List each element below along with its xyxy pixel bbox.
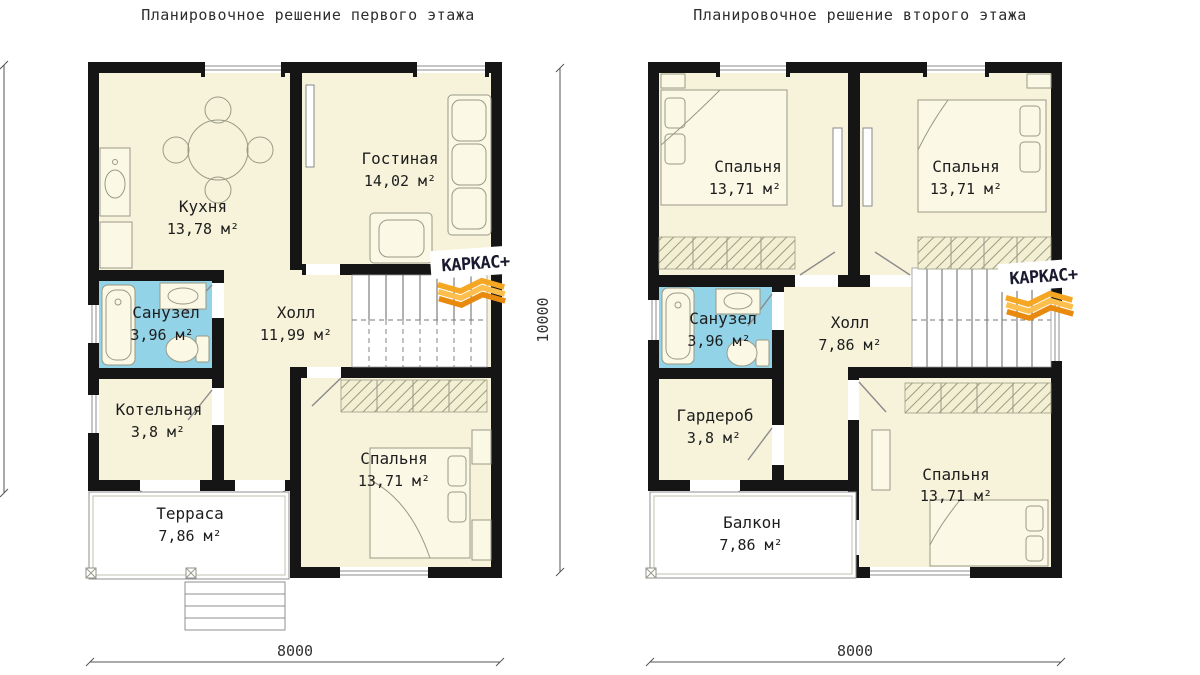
- floor-plans-canvas: Кухня 13,78 м² Гостиная 14,02 м² Санузел…: [0, 0, 1200, 675]
- room-area: 3,8 м²: [131, 423, 185, 441]
- balcony: [646, 492, 856, 578]
- bathtub-icon: [102, 285, 135, 365]
- room-name: Спальня: [922, 465, 989, 484]
- second-floor-plan: Спальня 13,71 м² Спальня 13,71 м² Санузе…: [646, 62, 1062, 578]
- window-bedroom: [340, 567, 428, 578]
- room-area: 3,8 м²: [687, 429, 741, 447]
- balcony-post: [646, 568, 656, 578]
- room-name: Терраса: [156, 504, 223, 523]
- window-bathroom: [88, 305, 99, 343]
- kitchen-counter-icon: [100, 148, 132, 268]
- sofa-icon: [448, 95, 491, 235]
- dimension-label: 8000: [837, 642, 873, 660]
- floor-plan-sheet: Планировочное решение первого этажа План…: [0, 0, 1200, 675]
- door-leaf-panel: [833, 128, 842, 206]
- dimension-width-second-floor: 8000: [646, 642, 1065, 666]
- room-name: Санузел: [689, 309, 756, 328]
- room-name: Балкон: [723, 513, 781, 532]
- dimension-depth-left-clipped: 10000: [0, 61, 8, 497]
- wardrobe: [341, 380, 487, 412]
- room-area: 13,71 м²: [709, 180, 781, 198]
- window-boiler: [88, 395, 99, 433]
- room-name: Холл: [831, 313, 870, 332]
- room-area: 3,96 м²: [687, 332, 750, 350]
- dimension-depth-middle: 10000: [534, 64, 564, 576]
- karkas-logo-second: КАРКАС+: [998, 258, 1092, 320]
- room-area: 13,71 м²: [930, 180, 1002, 198]
- room-name: Спальня: [714, 157, 781, 176]
- room-area: 13,71 м²: [920, 487, 992, 505]
- dimension-width-first-floor: 8000: [86, 642, 504, 666]
- room-area: 7,86 м²: [158, 527, 221, 545]
- room-area: 13,78 м²: [167, 220, 239, 238]
- room-name: Кухня: [179, 197, 227, 216]
- dimension-label: 10000: [534, 297, 552, 342]
- room-name: Котельная: [116, 400, 203, 419]
- room-name: Холл: [277, 303, 316, 322]
- room-area: 7,86 м²: [719, 536, 782, 554]
- room-name: Санузел: [132, 303, 199, 322]
- room-area: 14,02 м²: [364, 172, 436, 190]
- room-area: 3,96 м²: [130, 326, 193, 344]
- terrace-steps: [185, 582, 285, 630]
- door-leaf-panel: [306, 85, 314, 167]
- room-area: 7,86 м²: [818, 336, 881, 354]
- window-bedroom-bottom: [870, 567, 970, 578]
- door-leaf-panel: [863, 128, 872, 206]
- window-bathroom: [648, 300, 659, 340]
- room-area: 13,71 м²: [358, 472, 430, 490]
- karkas-logo-first: КАРКАС+: [430, 245, 524, 307]
- room-area: 11,99 м²: [260, 326, 332, 344]
- room-name: Гостиная: [361, 149, 438, 168]
- room-name: Спальня: [360, 449, 427, 468]
- armchair-icon: [370, 213, 432, 263]
- room-name: Гардероб: [676, 406, 753, 425]
- first-floor-plan: Кухня 13,78 м² Гостиная 14,02 м² Санузел…: [86, 62, 502, 630]
- room-name: Спальня: [932, 157, 999, 176]
- dimension-label: 8000: [277, 642, 313, 660]
